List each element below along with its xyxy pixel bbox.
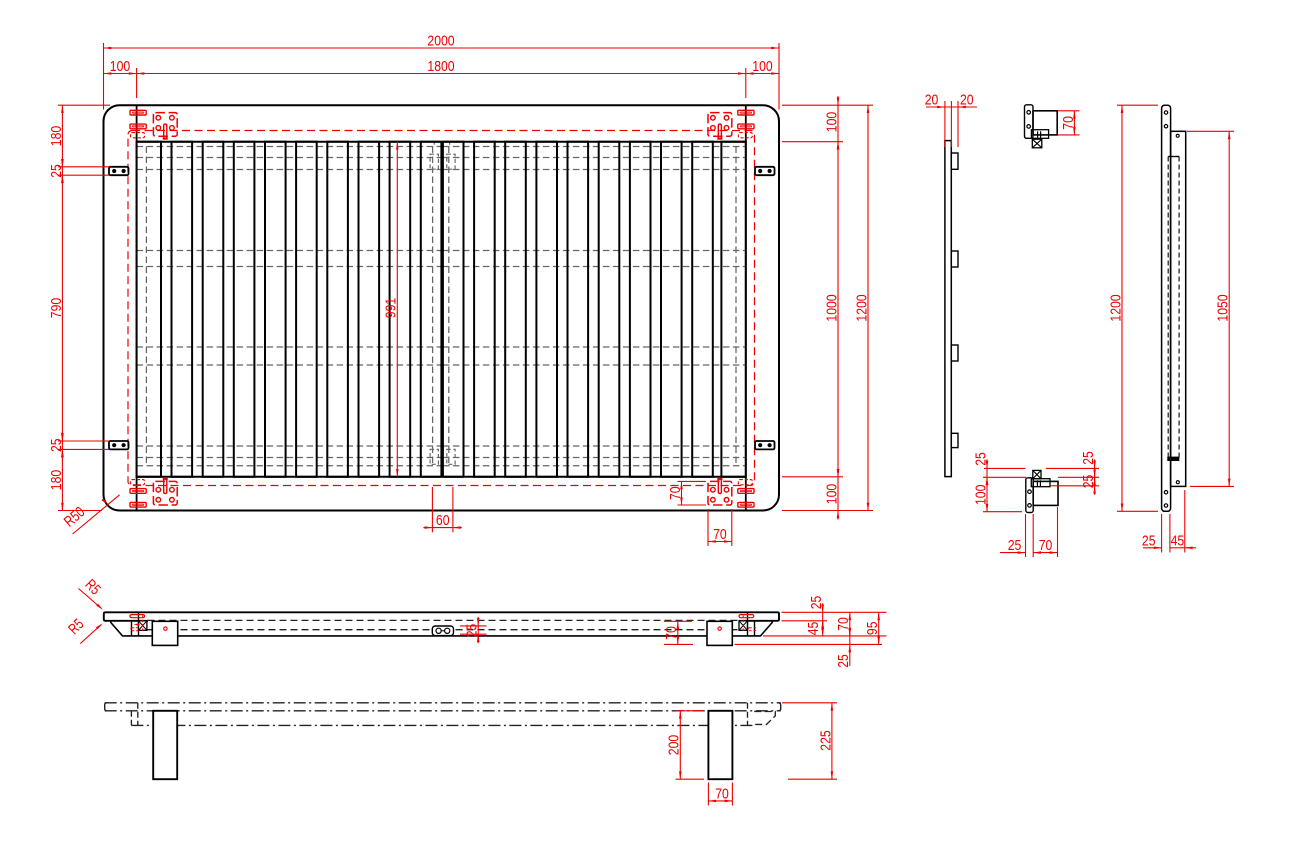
svg-text:1200: 1200: [1107, 294, 1124, 321]
svg-text:225: 225: [817, 730, 834, 750]
svg-text:70: 70: [715, 785, 729, 802]
svg-text:25: 25: [835, 654, 852, 668]
svg-text:180: 180: [48, 470, 65, 490]
svg-text:100: 100: [752, 58, 772, 75]
svg-text:790: 790: [48, 298, 65, 318]
svg-text:45: 45: [805, 622, 822, 636]
svg-text:70: 70: [667, 486, 684, 500]
svg-text:100: 100: [823, 484, 840, 504]
svg-text:70: 70: [1060, 116, 1077, 130]
svg-text:70: 70: [663, 626, 680, 640]
svg-text:25: 25: [1080, 451, 1097, 465]
svg-text:20: 20: [960, 92, 974, 109]
svg-text:25: 25: [972, 452, 989, 466]
svg-text:200: 200: [666, 735, 683, 755]
svg-text:25: 25: [48, 164, 65, 178]
svg-text:25: 25: [464, 624, 481, 638]
svg-text:1200: 1200: [853, 294, 870, 321]
svg-text:1050: 1050: [1215, 294, 1232, 321]
svg-text:70: 70: [1039, 537, 1053, 554]
svg-text:70: 70: [713, 526, 727, 543]
svg-text:2000: 2000: [427, 32, 454, 49]
svg-text:20: 20: [925, 92, 939, 109]
svg-text:991: 991: [383, 298, 400, 318]
svg-text:25: 25: [1008, 537, 1022, 554]
svg-text:25: 25: [48, 438, 65, 452]
svg-text:25: 25: [1080, 475, 1097, 489]
svg-text:1000: 1000: [823, 294, 840, 321]
svg-text:45: 45: [1171, 532, 1185, 549]
svg-text:60: 60: [436, 512, 450, 529]
svg-text:100: 100: [110, 58, 130, 75]
svg-text:95: 95: [864, 622, 881, 636]
svg-text:1800: 1800: [427, 58, 454, 75]
svg-text:25: 25: [1142, 532, 1156, 549]
svg-text:180: 180: [48, 126, 65, 146]
svg-text:100: 100: [972, 485, 989, 505]
svg-text:25: 25: [808, 596, 825, 610]
svg-text:100: 100: [823, 112, 840, 132]
